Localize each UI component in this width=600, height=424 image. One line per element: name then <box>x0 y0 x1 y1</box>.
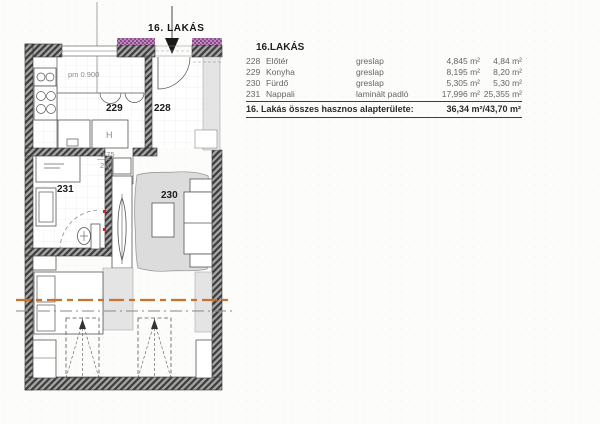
room-finish-cell: laminált padló <box>356 89 430 100</box>
living-room: 230 <box>135 172 212 272</box>
room-name-cell: Konyha <box>266 67 356 78</box>
entry-hall: 228 <box>154 103 171 114</box>
table-row: 231 Nappali laminált padló 17,996 m² 25,… <box>246 89 522 100</box>
wall-bottom <box>25 377 222 390</box>
wall-left <box>25 44 33 390</box>
table-title: 16.LAKÁS <box>256 42 522 53</box>
room-area-cell: 5,305 m² <box>430 78 480 89</box>
wardrobe-symbol <box>138 318 171 378</box>
room-area2-cell: 4,84 m² <box>480 56 522 67</box>
wall-right <box>212 150 222 377</box>
parapet-note: pm 0.900 <box>68 70 99 79</box>
fridge-label: H <box>106 130 113 140</box>
room-number-living: 230 <box>161 190 178 201</box>
floor-plan: 16. LAKÁS <box>0 0 240 424</box>
wall-top-mid <box>117 45 155 57</box>
door-height-label: 2.10 <box>100 161 115 170</box>
room-name-cell: Fürdő <box>266 78 356 89</box>
room-number-entry: 228 <box>154 103 171 114</box>
unit-title-label: 16. LAKÁS <box>148 21 205 34</box>
divider <box>246 117 522 118</box>
apartment-area-table: 16.LAKÁS 228 Előtér greslap 4,845 m² 4,8… <box>246 42 522 119</box>
room-area2-cell: 8,20 m² <box>480 67 522 78</box>
kitchen-cabinet <box>58 120 90 148</box>
room-number-cell: 231 <box>246 89 266 100</box>
room-name-cell: Előtér <box>266 56 356 67</box>
room-number-cell: 228 <box>246 56 266 67</box>
kitchen-window <box>62 46 117 56</box>
bed <box>34 272 103 334</box>
desk <box>195 272 212 332</box>
room-area-cell: 8,195 m² <box>430 67 480 78</box>
room-area-cell: 4,845 m² <box>430 56 480 67</box>
table-row: 228 Előtér greslap 4,845 m² 4,84 m² <box>246 56 522 67</box>
room-finish-cell: greslap <box>356 56 430 67</box>
table-rows: 228 Előtér greslap 4,845 m² 4,84 m² 229 … <box>246 56 522 100</box>
room-finish-cell: greslap <box>356 78 430 89</box>
dresser <box>33 340 56 378</box>
wall-top-right <box>192 45 222 57</box>
room-finish-cell: greslap <box>356 67 430 78</box>
table-row: 230 Fürdő greslap 5,305 m² 5,30 m² <box>246 78 522 89</box>
room-number-cell: 229 <box>246 67 266 78</box>
room-number-cell: 230 <box>246 78 266 89</box>
toilet-tank <box>91 224 100 249</box>
wall-bath-top <box>25 148 105 156</box>
table-row: 229 Konyha greslap 8,195 m² 8,20 m² <box>246 67 522 78</box>
side-cabinet <box>196 340 212 378</box>
table-total-row: 16. Lakás összes hasznos alapterülete: 3… <box>246 103 522 116</box>
sofa <box>184 179 212 267</box>
room-area-cell: 17,996 m² <box>430 89 480 100</box>
wall-kitchen-entry <box>145 56 152 150</box>
room-name-cell: Nappali <box>266 89 356 100</box>
wall-bath-right <box>105 156 112 256</box>
coffee-table <box>152 203 174 237</box>
outlet-dot <box>103 210 106 213</box>
total-label: 16. Lakás összes hasznos alapterülete: <box>246 103 446 116</box>
room-area2-cell: 25,355 m² <box>480 89 522 100</box>
outlet-dot <box>103 228 106 231</box>
room-area2-cell: 5,30 m² <box>480 78 522 89</box>
room-number-bath: 231 <box>57 184 74 195</box>
door-width-label: 0.75 <box>100 150 115 159</box>
room-number-kitchen: 229 <box>106 103 123 114</box>
pillar <box>195 130 217 148</box>
nightstand <box>33 256 56 270</box>
total-value: 36,34 m²/43,70 m² <box>446 103 522 116</box>
wall-stub <box>133 148 157 156</box>
kitchen-stove <box>34 86 57 120</box>
bath-counter <box>36 156 80 182</box>
divider <box>246 101 522 102</box>
